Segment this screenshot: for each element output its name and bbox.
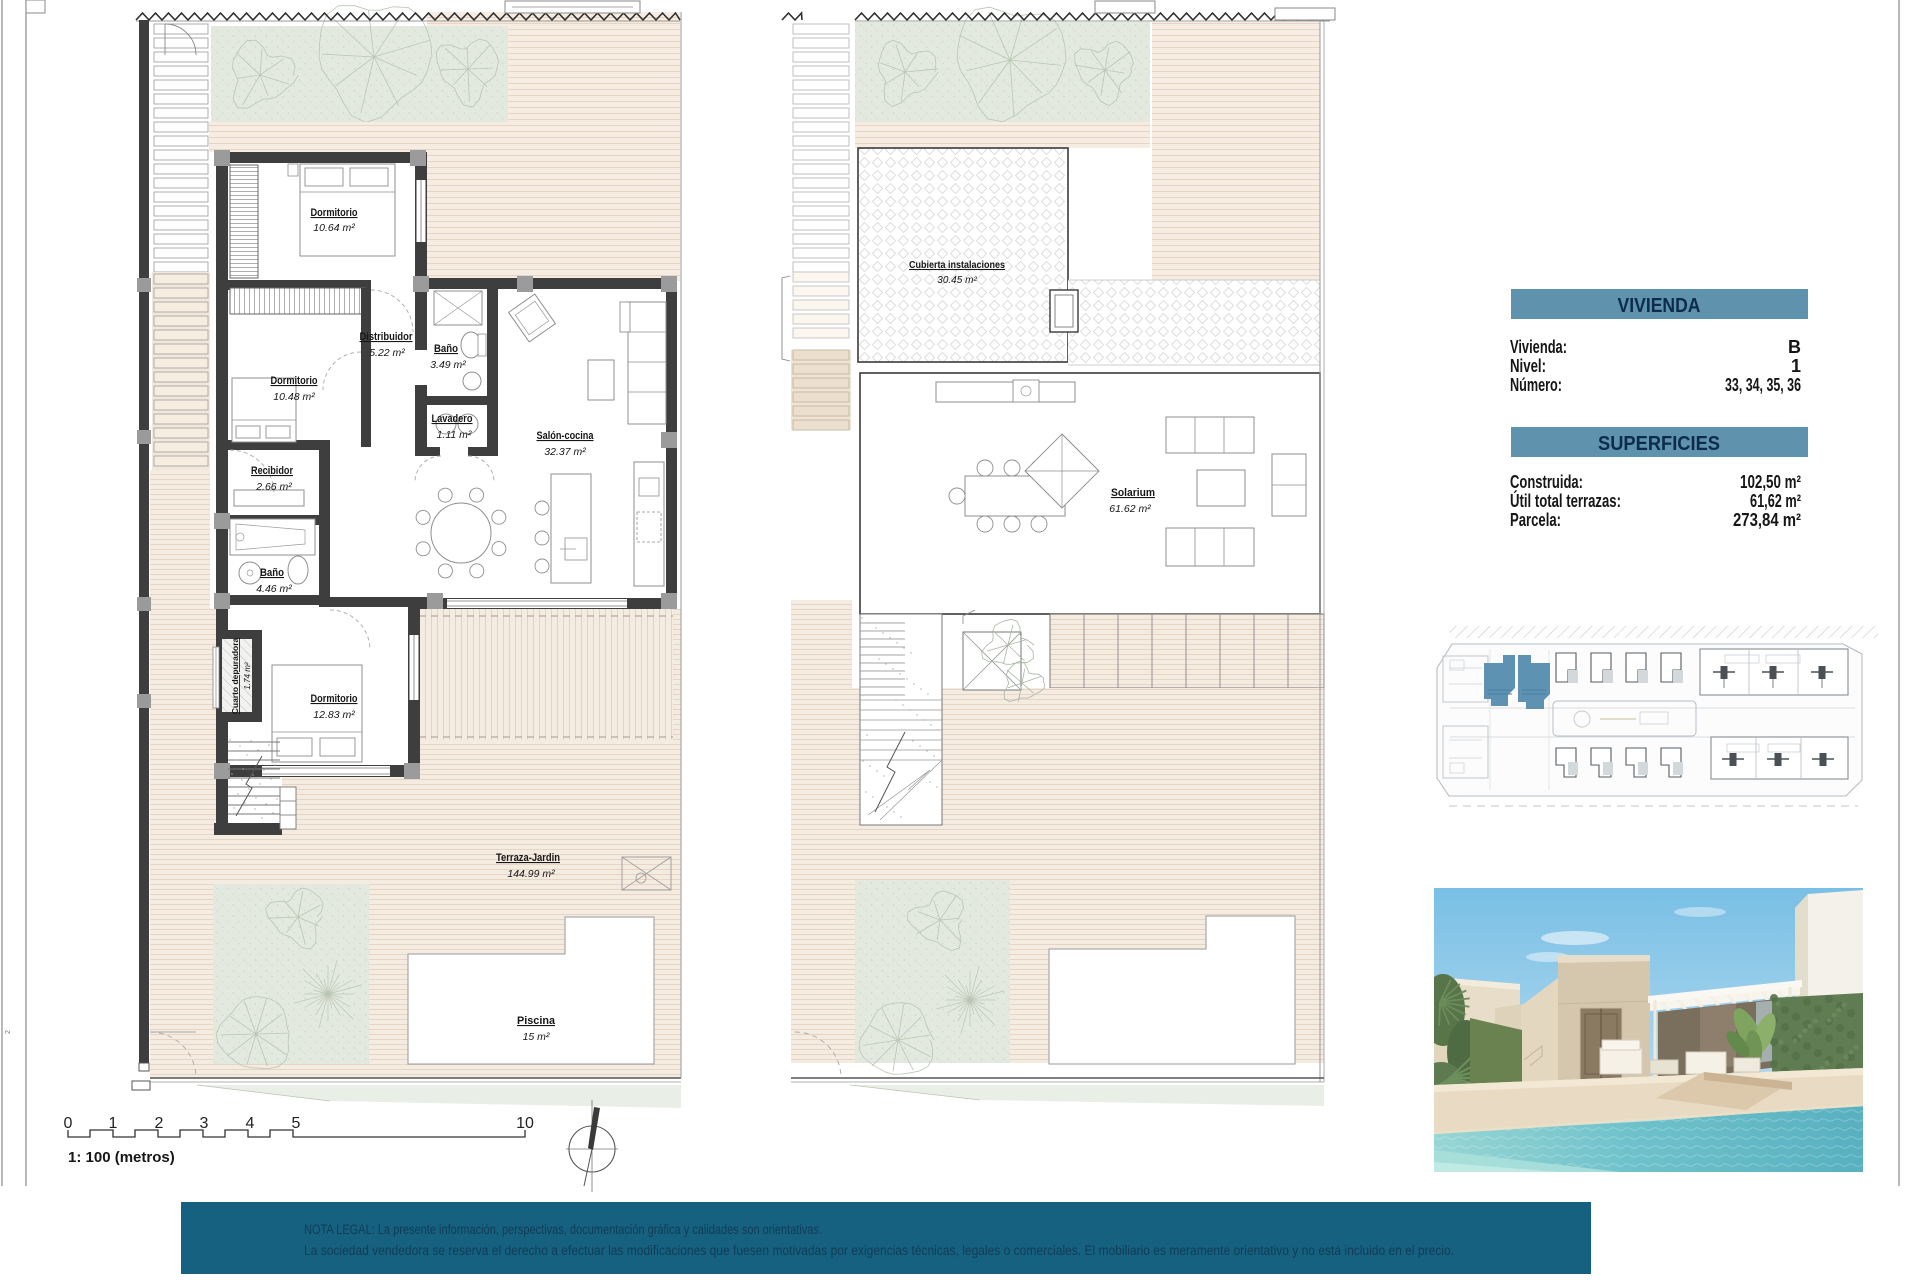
svg-text:Dormitorio: Dormitorio [271,375,318,387]
svg-text:Piscina: Piscina [517,1015,556,1027]
svg-text:NOTA LEGAL: La presente inform: NOTA LEGAL: La presente información, per… [304,1222,822,1237]
svg-text:2: 2 [5,1030,12,1034]
svg-text:Útil total terrazas:: Útil total terrazas: [1510,490,1621,511]
svg-text:10.48 m²: 10.48 m² [273,391,315,403]
svg-text:Dormitorio: Dormitorio [311,207,358,219]
svg-text:Número:: Número: [1510,375,1562,395]
svg-text:Terraza-Jardin: Terraza-Jardin [496,852,560,864]
svg-text:1: 100 (metros): 1: 100 (metros) [68,1149,175,1166]
svg-text:Salón-cocina: Salón-cocina [537,430,595,442]
svg-text:15 m²: 15 m² [523,1031,550,1043]
svg-text:Lavadero: Lavadero [432,413,473,425]
svg-text:B: B [1788,337,1801,357]
svg-text:Baño: Baño [260,567,284,579]
svg-text:Vivienda:: Vivienda: [1510,337,1567,357]
svg-text:30.45 m²: 30.45 m² [937,275,977,286]
svg-text:33, 34, 35, 36: 33, 34, 35, 36 [1725,375,1801,395]
svg-text:Cuarto depuradora: Cuarto depuradora [230,637,240,714]
svg-text:1.74 m²: 1.74 m² [243,662,252,689]
svg-text:1.11 m²: 1.11 m² [437,429,472,441]
svg-text:Cubierta instalaciones: Cubierta instalaciones [909,259,1005,271]
svg-text:3.49 m²: 3.49 m² [430,359,466,371]
svg-text:Distribuidor: Distribuidor [360,331,414,343]
svg-text:Construida:: Construida: [1510,472,1583,492]
svg-text:32.37 m²: 32.37 m² [544,446,586,458]
svg-text:Recibidor: Recibidor [251,465,294,477]
svg-text:VIVIENDA: VIVIENDA [1618,295,1701,317]
svg-text:5.22 m²: 5.22 m² [369,347,405,359]
svg-text:61.62 m²: 61.62 m² [1109,503,1151,515]
svg-text:61,62 m²: 61,62 m² [1750,491,1801,511]
svg-text:102,50 m²: 102,50 m² [1740,472,1801,492]
svg-text:273,84 m²: 273,84 m² [1733,510,1801,530]
svg-text:12.83 m²: 12.83 m² [313,709,355,721]
svg-text:2.66 m²: 2.66 m² [255,481,292,493]
svg-text:Dormitorio: Dormitorio [311,693,358,705]
svg-text:La sociedad vendedora se reser: La sociedad vendedora se reserva el dere… [304,1243,1454,1258]
svg-text:10.64 m²: 10.64 m² [313,222,355,234]
svg-text:Parcela:: Parcela: [1510,510,1561,530]
svg-text:4.46 m²: 4.46 m² [256,583,292,595]
svg-text:Baño: Baño [434,343,458,355]
svg-text:0: 0 [64,1115,73,1132]
svg-text:Solarium: Solarium [1111,487,1155,499]
svg-text:1: 1 [1791,356,1801,376]
svg-text:SUPERFICIES: SUPERFICIES [1598,433,1720,455]
svg-text:Nivel:: Nivel: [1510,356,1546,376]
svg-text:10: 10 [516,1115,534,1132]
svg-text:144.99 m²: 144.99 m² [507,868,555,880]
